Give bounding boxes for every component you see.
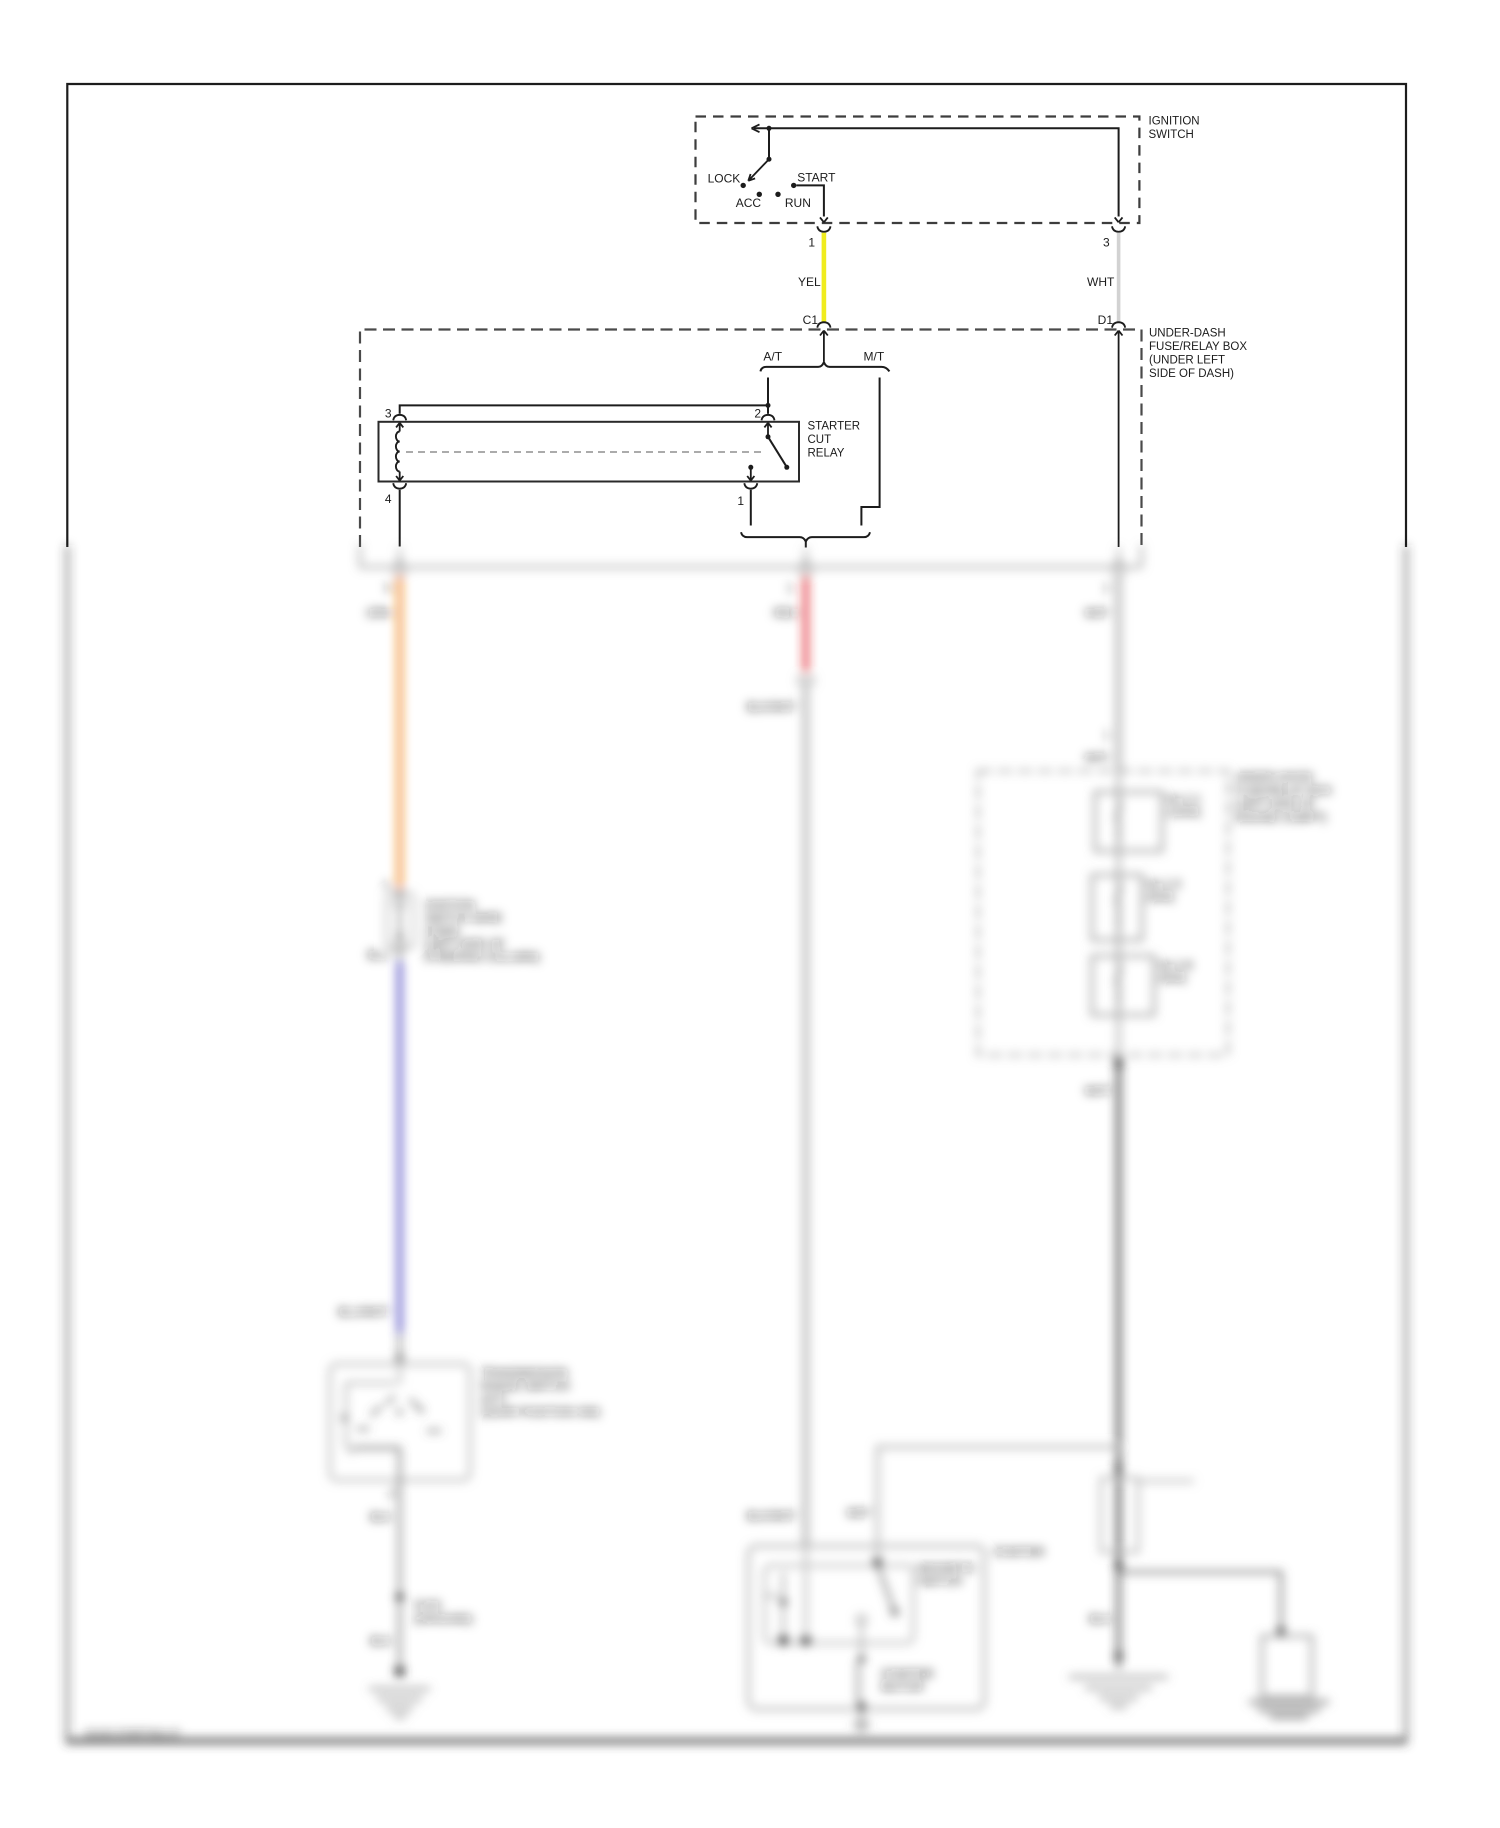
svg-text:9: 9 <box>386 583 392 595</box>
svg-text:3: 3 <box>1103 236 1110 250</box>
svg-text:WHT: WHT <box>1087 275 1115 289</box>
svg-text:CUT: CUT <box>808 434 832 446</box>
svg-text:MOTOR: MOTOR <box>881 1682 924 1694</box>
svg-text:STARTER: STARTER <box>992 1547 1045 1559</box>
svg-text:STARTER: STARTER <box>881 1669 934 1681</box>
svg-text:A/T: A/T <box>763 350 782 364</box>
svg-text:RANGE SWITCH: RANGE SWITCH <box>480 1381 569 1393</box>
svg-text:WHT: WHT <box>847 1508 873 1520</box>
svg-text:3: 3 <box>385 407 392 421</box>
svg-text:1: 1 <box>737 494 744 508</box>
svg-text:(100A): (100A) <box>1166 807 1201 819</box>
svg-text:(GEAR POSITION SW): (GEAR POSITION SW) <box>480 1407 600 1419</box>
svg-text:(LEFT SIDE OF: (LEFT SIDE OF <box>424 939 505 951</box>
svg-text:ENGINE COMPT): ENGINE COMPT) <box>1234 813 1327 825</box>
svg-text:2: 2 <box>1105 583 1111 595</box>
svg-text:C1: C1 <box>803 313 819 327</box>
svg-text:SWITCH WIRE: SWITCH WIRE <box>424 913 503 925</box>
svg-text:54100-STARTING-07: 54100-STARTING-07 <box>85 1729 181 1740</box>
svg-text:1: 1 <box>808 236 815 250</box>
svg-text:ORN: ORN <box>366 608 392 620</box>
svg-text:ACC: ACC <box>736 196 762 210</box>
svg-text:IGNITION: IGNITION <box>424 900 475 912</box>
svg-text:RED: RED <box>774 608 798 620</box>
svg-text:START: START <box>797 171 836 185</box>
svg-text:STEERING COLUMN): STEERING COLUMN) <box>424 952 540 964</box>
svg-text:WHT: WHT <box>1085 1086 1111 1098</box>
svg-text:FUSE/RELAY BOX: FUSE/RELAY BOX <box>1149 341 1247 353</box>
svg-text:2: 2 <box>754 407 761 421</box>
svg-text:SWITCH: SWITCH <box>1149 129 1194 141</box>
svg-text:1: 1 <box>1105 730 1111 742</box>
svg-text:RUN: RUN <box>785 196 811 210</box>
svg-text:(50A): (50A) <box>1146 892 1174 904</box>
svg-text:WHT: WHT <box>1085 608 1111 620</box>
svg-text:(UNDER LEFT: (UNDER LEFT <box>1149 355 1225 367</box>
svg-text:YEL: YEL <box>798 275 821 289</box>
svg-text:UNDER-HOOD: UNDER-HOOD <box>1234 772 1313 784</box>
svg-text:(GROUND): (GROUND) <box>414 1614 473 1626</box>
svg-text:TRANSMISSION: TRANSMISSION <box>480 1368 568 1380</box>
svg-text:BLK: BLK <box>370 1636 392 1648</box>
svg-text:No.1-3: No.1-3 <box>1146 879 1181 891</box>
svg-text:LOCK: LOCK <box>708 172 741 186</box>
svg-text:M/T: M/T <box>864 350 885 364</box>
svg-text:No.1-1: No.1-1 <box>1166 794 1201 806</box>
svg-text:SIDE OF DASH): SIDE OF DASH) <box>1149 368 1234 380</box>
svg-text:D1: D1 <box>1098 313 1114 327</box>
svg-text:BLU/WHT: BLU/WHT <box>338 1307 390 1319</box>
svg-text:(C584): (C584) <box>424 926 459 938</box>
svg-text:BLK: BLK <box>370 1512 392 1524</box>
svg-text:BLK/WHT: BLK/WHT <box>747 1511 798 1523</box>
svg-text:(LEFT SIDE OF: (LEFT SIDE OF <box>1234 799 1315 811</box>
svg-text:No.1-6: No.1-6 <box>1158 960 1193 972</box>
svg-text:1: 1 <box>788 583 794 595</box>
svg-text:G101: G101 <box>414 1600 442 1612</box>
svg-text:FUSE/RELAY BOX: FUSE/RELAY BOX <box>1234 786 1332 798</box>
svg-text:4: 4 <box>384 881 391 893</box>
svg-text:BLK/WHT: BLK/WHT <box>747 702 798 714</box>
svg-text:(50A): (50A) <box>1158 973 1186 985</box>
svg-text:4: 4 <box>385 492 392 506</box>
svg-text:STARTER: STARTER <box>808 421 861 433</box>
svg-text:SWITCH: SWITCH <box>917 1576 962 1588</box>
svg-text:IGNITION: IGNITION <box>1149 116 1200 128</box>
svg-text:RELAY: RELAY <box>808 448 845 460</box>
svg-text:UNDER-DASH: UNDER-DASH <box>1149 328 1226 340</box>
svg-text:WHT: WHT <box>1085 753 1111 765</box>
svg-text:BLU: BLU <box>368 950 390 962</box>
svg-text:2: 2 <box>389 1488 395 1500</box>
svg-text:MAGNETIC: MAGNETIC <box>917 1563 978 1575</box>
svg-text:BLK: BLK <box>1089 1614 1111 1626</box>
svg-text:(A/T): (A/T) <box>480 1394 506 1406</box>
